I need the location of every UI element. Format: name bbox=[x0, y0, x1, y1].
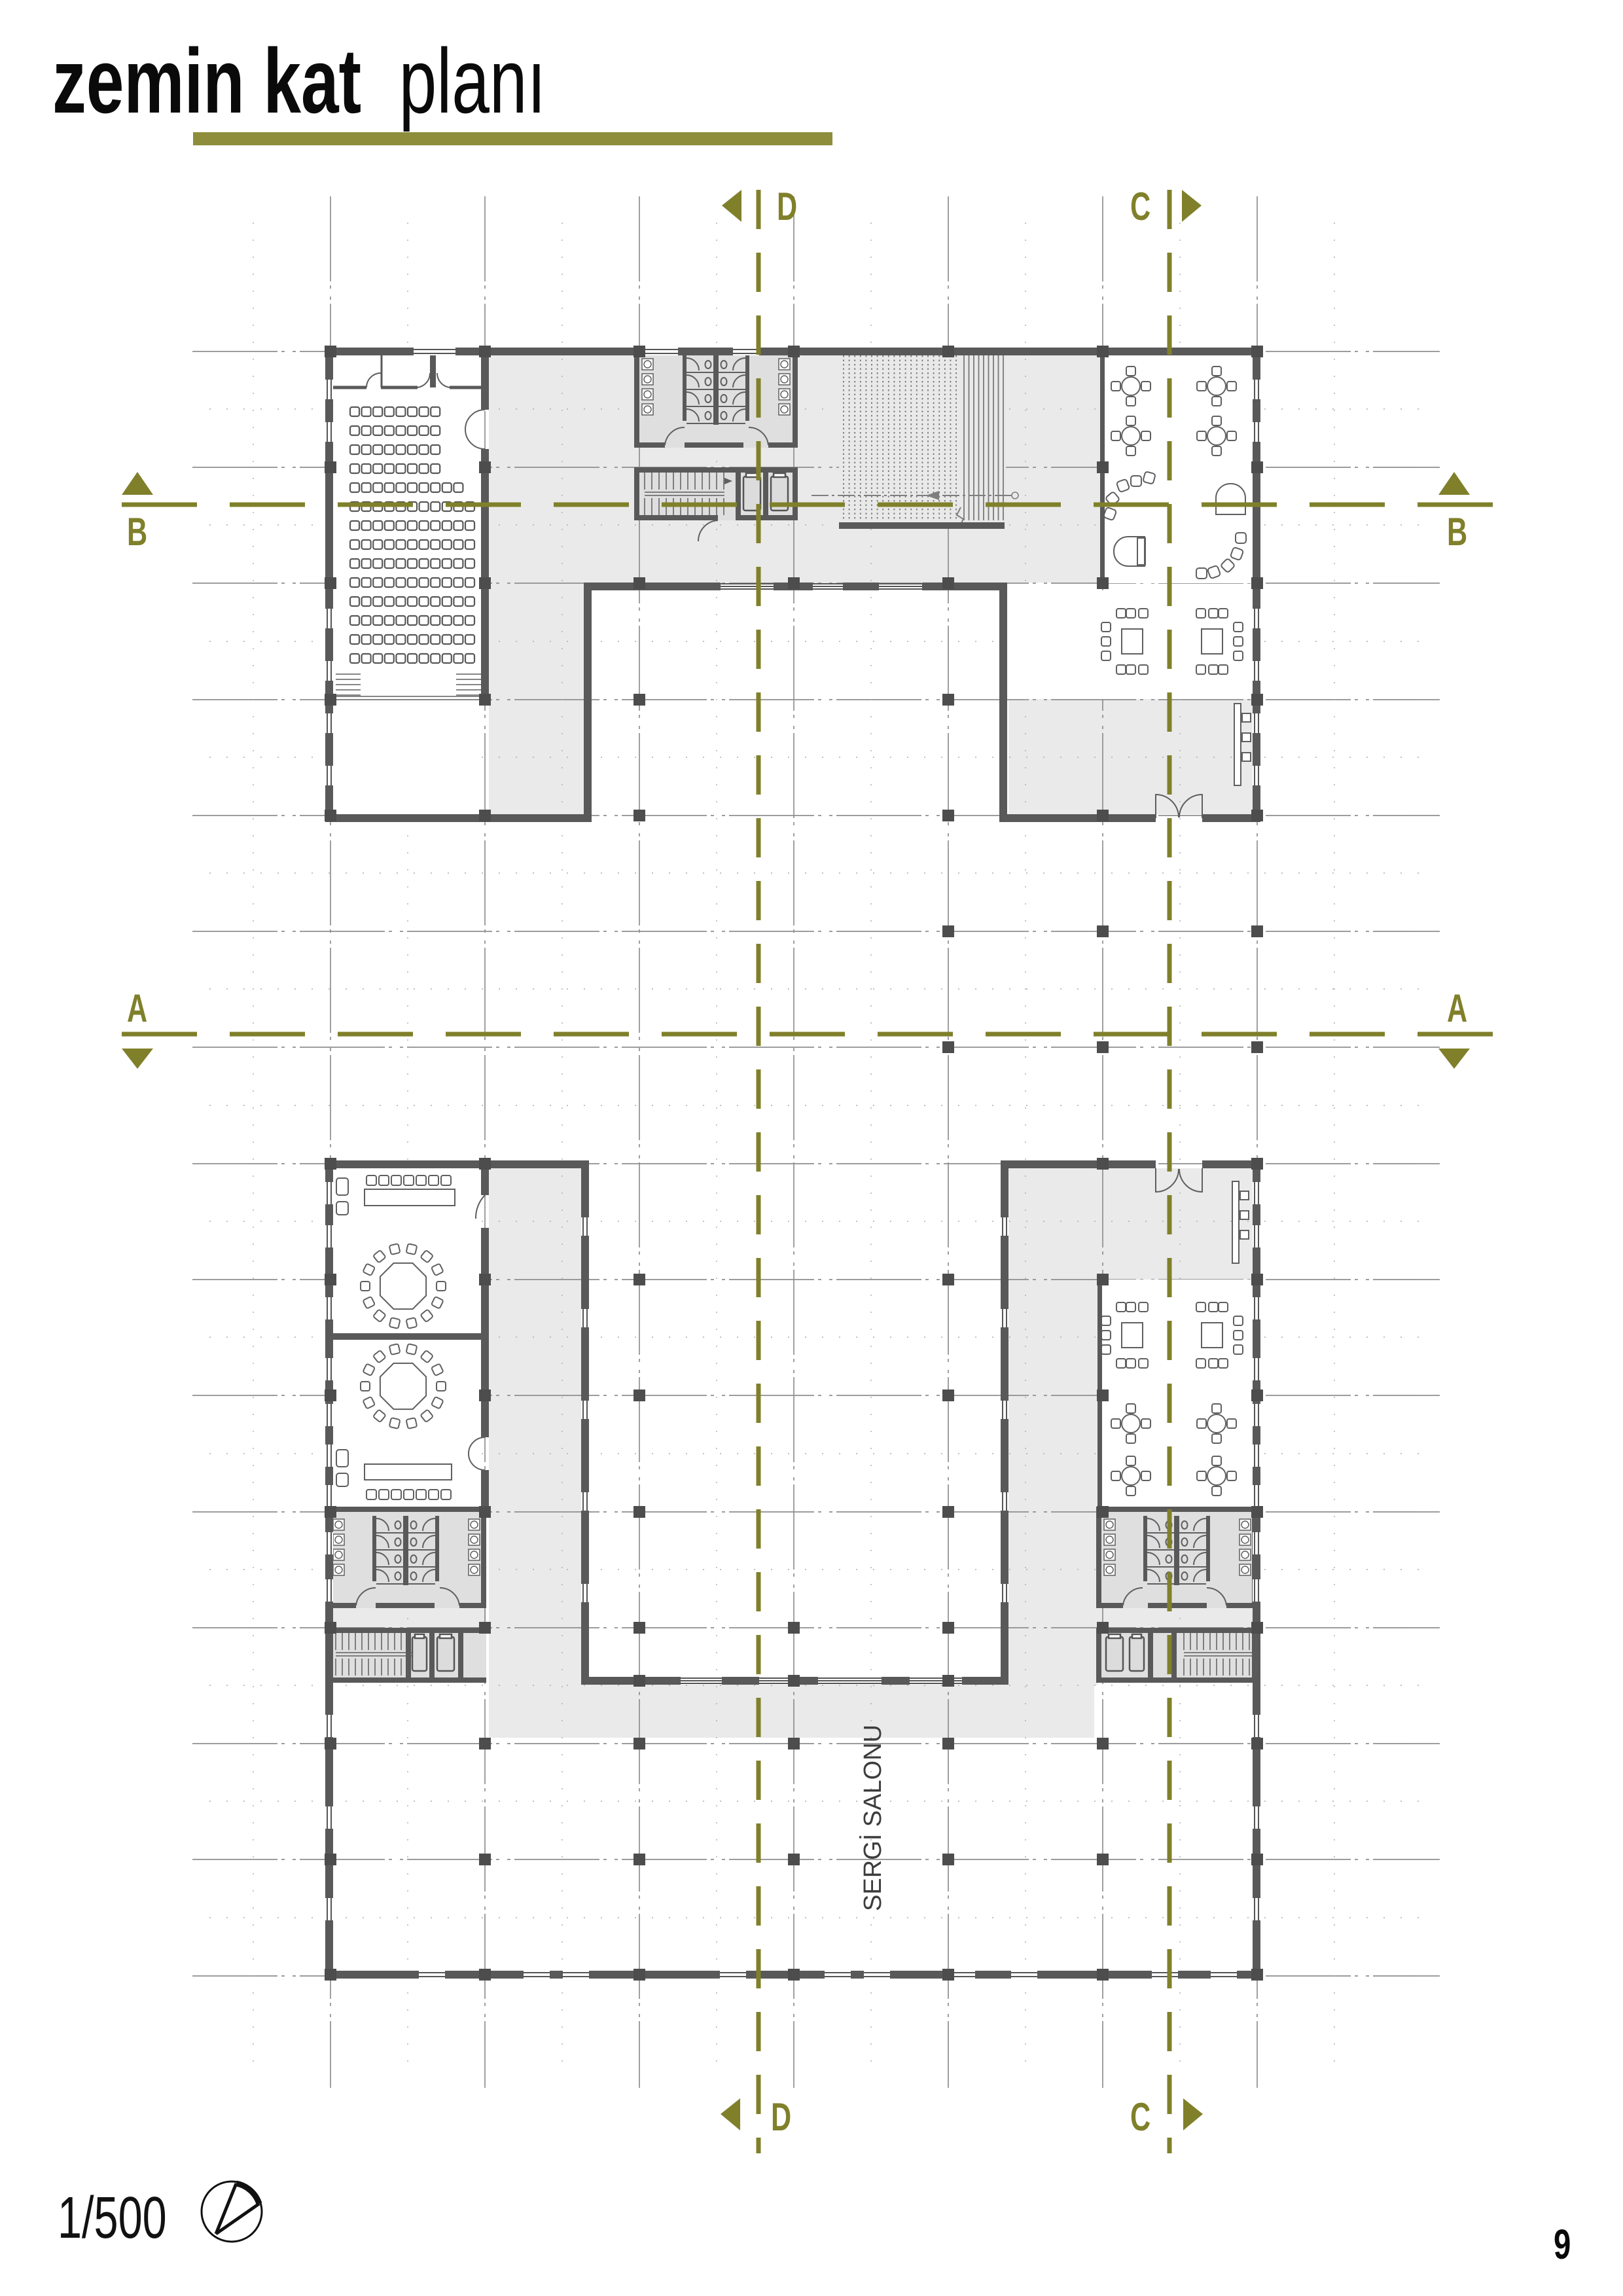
svg-text:B: B bbox=[127, 511, 147, 554]
svg-text:A: A bbox=[127, 987, 147, 1031]
svg-text:B: B bbox=[1447, 511, 1467, 554]
svg-text:D: D bbox=[771, 2096, 791, 2140]
svg-text:C: C bbox=[1130, 185, 1150, 229]
svg-text:C: C bbox=[1130, 2096, 1150, 2140]
svg-text:zemin kat planı: zemin kat planı bbox=[52, 31, 546, 133]
svg-text:9: 9 bbox=[1554, 2221, 1571, 2268]
svg-text:A: A bbox=[1447, 987, 1467, 1031]
svg-text:1/500: 1/500 bbox=[58, 2184, 167, 2250]
svg-text:SERGİ SALONU: SERGİ SALONU bbox=[859, 1725, 887, 1911]
svg-text:D: D bbox=[777, 185, 797, 229]
